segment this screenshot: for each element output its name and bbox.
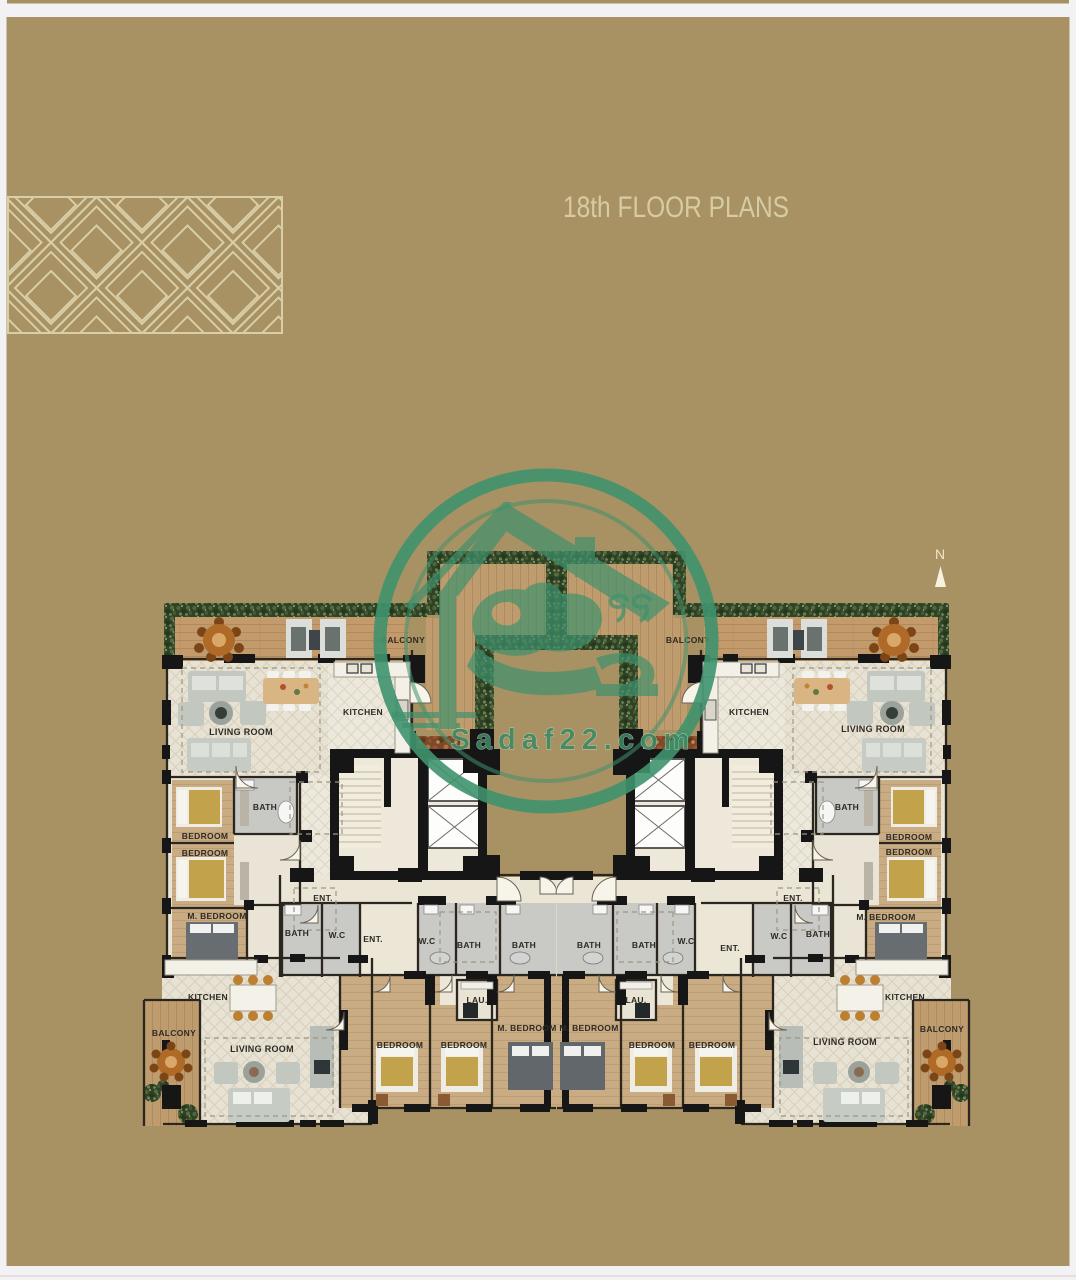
svg-text:LIVING ROOM: LIVING ROOM [230,1044,294,1054]
svg-text:BEDROOM: BEDROOM [182,831,229,841]
svg-text:BATH: BATH [512,940,536,950]
svg-text:BEDROOM: BEDROOM [441,1040,488,1050]
svg-text:ENT.: ENT. [783,893,803,903]
svg-text:ENT.: ENT. [313,893,333,903]
svg-text:Sadaf22.com: Sadaf22.com [451,724,696,756]
svg-text:BATH: BATH [577,940,601,950]
svg-text:LAU.: LAU. [625,995,646,1005]
svg-text:M. BEDROOM: M. BEDROOM [187,911,246,921]
svg-text:BALCONY: BALCONY [920,1024,964,1034]
svg-text:W.C: W.C [771,931,788,941]
svg-text:W.C: W.C [419,936,436,946]
svg-text:BEDROOM: BEDROOM [629,1040,676,1050]
svg-text:M. BEDROOM: M. BEDROOM [497,1023,556,1033]
svg-text:BATH: BATH [806,929,830,939]
svg-text:KITCHEN: KITCHEN [885,992,925,1002]
svg-text:BATH: BATH [253,802,277,812]
svg-text:BALCONY: BALCONY [666,635,710,645]
svg-text:BALCONY: BALCONY [381,635,425,645]
svg-text:BEDROOM: BEDROOM [689,1040,736,1050]
svg-text:KITCHEN: KITCHEN [188,992,228,1002]
svg-text:BALCONY: BALCONY [152,1028,196,1038]
svg-text:W.C: W.C [678,936,695,946]
svg-text:BEDROOM: BEDROOM [377,1040,424,1050]
svg-text:ENT.: ENT. [363,934,383,944]
svg-text:BEDROOM: BEDROOM [182,848,229,858]
svg-text:LAU.: LAU. [466,995,487,1005]
svg-text:LIVING ROOM: LIVING ROOM [209,727,273,737]
svg-text:M. BEDROOM: M. BEDROOM [559,1023,618,1033]
svg-text:LIVING ROOM: LIVING ROOM [841,724,905,734]
svg-text:BATH: BATH [632,940,656,950]
svg-text:BEDROOM: BEDROOM [886,832,933,842]
svg-text:BEDROOM: BEDROOM [886,847,933,857]
svg-text:N: N [935,546,945,562]
svg-text:BATH: BATH [835,802,859,812]
svg-text:M. BEDROOM: M. BEDROOM [856,912,915,922]
svg-text:BATH: BATH [457,940,481,950]
svg-text:LIVING ROOM: LIVING ROOM [813,1037,877,1047]
svg-text:18th FLOOR PLANS: 18th FLOOR PLANS [563,191,789,224]
svg-text:KITCHEN: KITCHEN [729,707,769,717]
svg-text:ENT.: ENT. [720,943,740,953]
svg-text:W.C: W.C [329,930,346,940]
svg-text:BATH: BATH [285,928,309,938]
svg-text:KITCHEN: KITCHEN [343,707,383,717]
